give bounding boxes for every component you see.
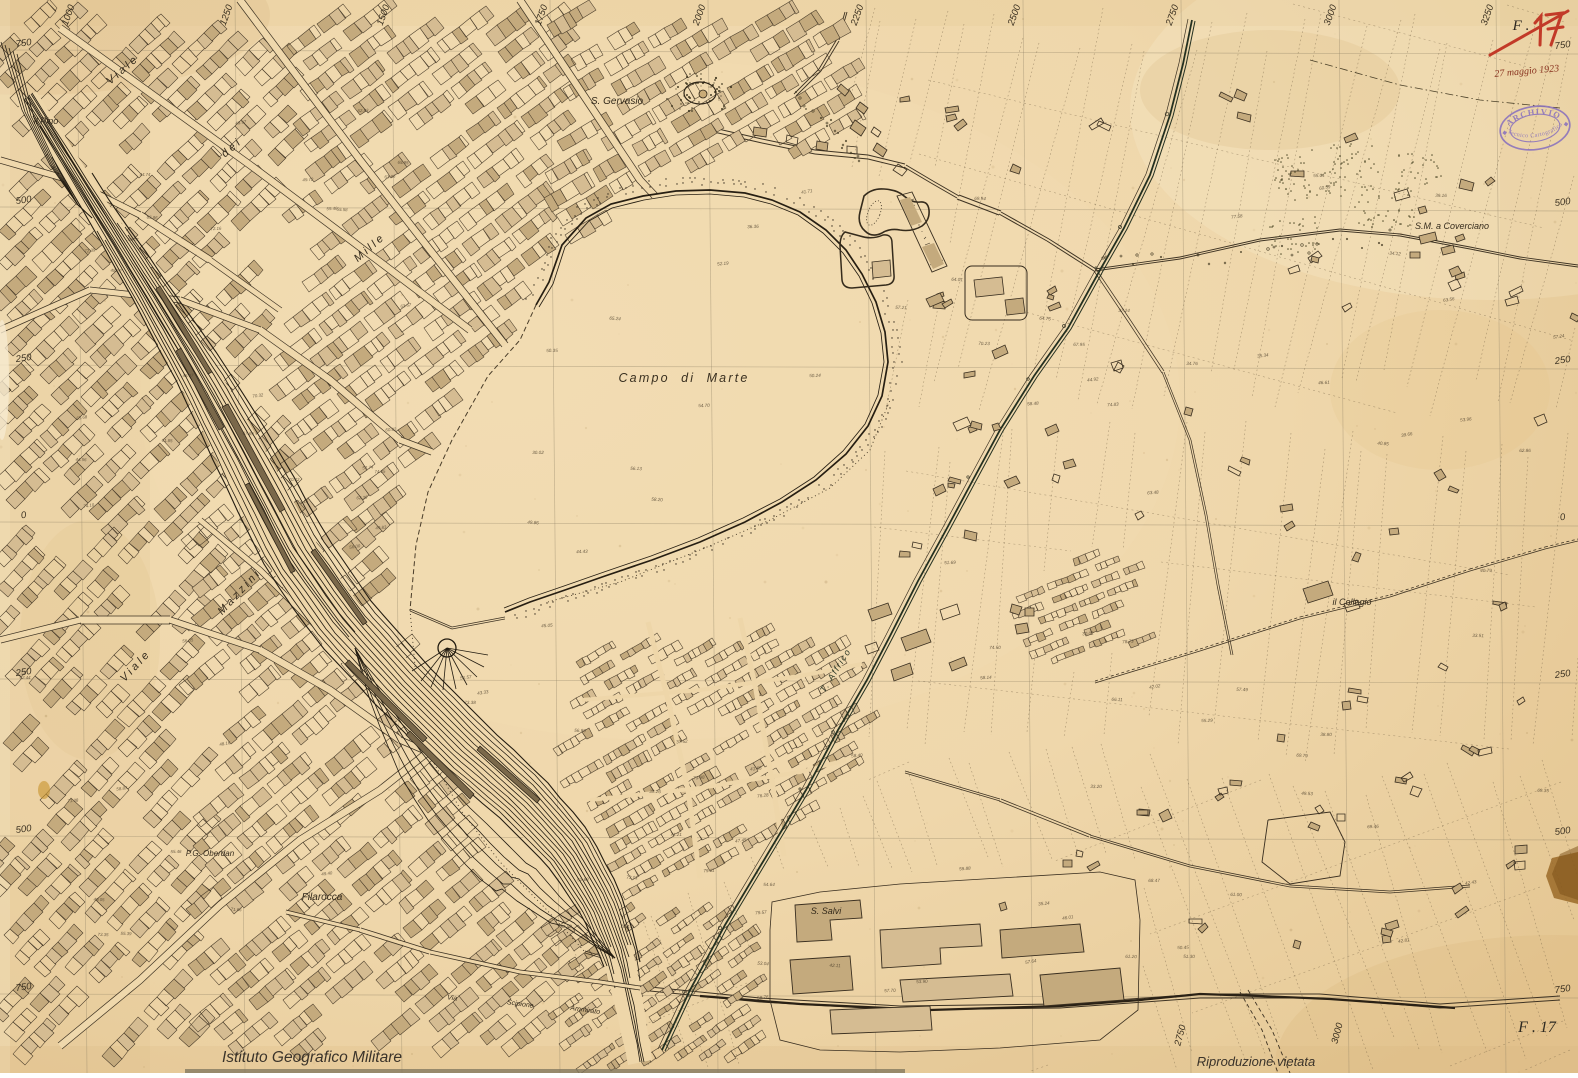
svg-text:73.38: 73.38	[464, 700, 476, 705]
svg-text:71.66: 71.66	[230, 907, 242, 913]
svg-text:56.99: 56.99	[574, 728, 586, 733]
svg-text:55.58: 55.58	[336, 207, 348, 213]
svg-text:S. Salvi: S. Salvi	[811, 906, 843, 916]
svg-text:Istituto Geografico Militare: Istituto Geografico Militare	[222, 1049, 402, 1066]
svg-text:67.95: 67.95	[1073, 342, 1085, 347]
svg-text:50.83: 50.83	[560, 924, 572, 929]
svg-text:58.20: 58.20	[651, 497, 663, 503]
svg-text:53.04: 53.04	[757, 961, 769, 967]
svg-text:69.35: 69.35	[1537, 788, 1549, 793]
svg-text:35.24: 35.24	[1038, 900, 1050, 906]
svg-text:57.49: 57.49	[1236, 687, 1248, 692]
svg-text:30.02: 30.02	[1082, 631, 1094, 637]
svg-text:44.74: 44.74	[139, 172, 151, 177]
svg-text:44.56: 44.56	[75, 457, 87, 462]
svg-text:49.53: 49.53	[1301, 791, 1313, 796]
svg-text:52.68: 52.68	[577, 877, 589, 883]
svg-text:Via: Via	[447, 994, 458, 1002]
svg-text:54.64: 54.64	[763, 882, 775, 887]
svg-text:71.98: 71.98	[693, 774, 705, 780]
svg-text:30.02: 30.02	[532, 450, 544, 455]
svg-text:Campo di Marte: Campo di Marte	[618, 371, 749, 385]
svg-text:Riproduzione vietata: Riproduzione vietata	[1197, 1054, 1316, 1069]
svg-text:48.22: 48.22	[110, 268, 122, 273]
svg-text:63.48: 63.48	[1147, 490, 1159, 496]
svg-text:78.73: 78.73	[1122, 639, 1134, 645]
svg-text:74.25: 74.25	[374, 469, 386, 475]
svg-text:500: 500	[1554, 196, 1572, 209]
svg-text:Filarocca: Filarocca	[302, 892, 343, 903]
svg-text:F .: F .	[1512, 18, 1530, 34]
svg-text:61.85: 61.85	[161, 438, 173, 444]
svg-text:44.43: 44.43	[576, 549, 588, 555]
svg-text:500: 500	[15, 194, 33, 207]
svg-text:500: 500	[15, 823, 33, 836]
svg-text:750: 750	[1554, 39, 1572, 52]
svg-text:51.30: 51.30	[1183, 954, 1195, 959]
svg-text:il Pino: il Pino	[34, 116, 59, 126]
svg-text:55.29: 55.29	[1201, 718, 1213, 723]
svg-text:58.48: 58.48	[1027, 401, 1039, 407]
svg-text:68.47: 68.47	[1148, 878, 1160, 883]
svg-text:65.95: 65.95	[397, 160, 409, 166]
svg-text:37.52: 37.52	[676, 739, 688, 745]
svg-text:72.16: 72.16	[210, 226, 222, 232]
svg-text:750: 750	[15, 37, 33, 50]
svg-text:45.97: 45.97	[182, 373, 194, 378]
svg-text:66.11: 66.11	[1111, 697, 1123, 702]
svg-text:62.86: 62.86	[1519, 448, 1531, 453]
svg-text:65.86: 65.86	[146, 215, 158, 221]
svg-text:61.00: 61.00	[1230, 892, 1242, 897]
svg-text:50.24: 50.24	[809, 373, 821, 378]
svg-text:71.21: 71.21	[670, 832, 682, 837]
svg-text:39.16: 39.16	[1435, 193, 1447, 198]
svg-text:il Collegio: il Collegio	[1332, 597, 1371, 607]
svg-text:S.M. a Coverciano: S.M. a Coverciano	[1415, 221, 1489, 231]
svg-text:37.24: 37.24	[1118, 308, 1130, 313]
svg-text:55.01: 55.01	[1313, 173, 1325, 178]
svg-text:52.19: 52.19	[717, 261, 729, 267]
svg-text:65.24: 65.24	[609, 316, 621, 322]
svg-text:40.79: 40.79	[1480, 568, 1492, 573]
svg-text:61.20: 61.20	[1125, 954, 1137, 959]
svg-text:33.51: 33.51	[1472, 633, 1484, 638]
svg-text:55.39: 55.39	[120, 931, 132, 936]
svg-text:45.05: 45.05	[541, 623, 553, 629]
svg-text:38.80: 38.80	[1320, 732, 1332, 737]
svg-text:57.21: 57.21	[895, 305, 907, 310]
svg-text:58.14: 58.14	[980, 675, 992, 681]
svg-text:70.02: 70.02	[288, 477, 300, 482]
svg-text:64.75: 64.75	[1039, 316, 1051, 322]
svg-text:79.11: 79.11	[703, 868, 715, 874]
svg-text:34.76: 34.76	[1186, 361, 1198, 366]
svg-text:73.35: 73.35	[97, 932, 109, 937]
svg-text:750: 750	[15, 981, 33, 994]
svg-text:67.69: 67.69	[242, 431, 254, 437]
svg-text:50.35: 50.35	[546, 348, 558, 353]
svg-text:34.12: 34.12	[1389, 251, 1401, 257]
svg-text:57.70: 57.70	[884, 988, 896, 993]
svg-text:74.50: 74.50	[989, 645, 1001, 650]
svg-text:49.86: 49.86	[527, 520, 539, 526]
svg-text:54.70: 54.70	[698, 403, 710, 408]
svg-text:74.83: 74.83	[1107, 402, 1119, 408]
svg-text:76.47: 76.47	[620, 924, 632, 930]
svg-text:51.69: 51.69	[944, 560, 956, 565]
svg-text:42.11: 42.11	[829, 963, 841, 969]
svg-text:S. Gervasio: S. Gervasio	[591, 96, 644, 107]
svg-text:62.83: 62.83	[357, 108, 369, 114]
svg-text:59.88: 59.88	[959, 866, 971, 872]
svg-text:750: 750	[1554, 983, 1572, 996]
svg-text:49.72: 49.72	[302, 177, 314, 183]
svg-text:62.36: 62.36	[356, 495, 368, 501]
svg-text:69.94: 69.94	[974, 196, 986, 201]
svg-text:50.45: 50.45	[1177, 945, 1189, 950]
svg-text:56.13: 56.13	[630, 466, 642, 471]
svg-text:64.01: 64.01	[951, 277, 963, 283]
svg-text:39.26: 39.26	[649, 789, 661, 794]
svg-text:59.46: 59.46	[326, 206, 338, 212]
svg-text:56.17: 56.17	[127, 237, 139, 242]
svg-text:40.85: 40.85	[1377, 441, 1389, 447]
svg-text:46.61: 46.61	[1318, 380, 1330, 385]
svg-text:70.23: 70.23	[978, 341, 990, 346]
svg-text:55.46: 55.46	[170, 849, 182, 854]
svg-text:P.G. Oberdan: P.G. Oberdan	[186, 849, 235, 858]
svg-text:73.01: 73.01	[626, 875, 638, 881]
svg-text:49.83: 49.83	[375, 524, 387, 530]
svg-text:33.20: 33.20	[1090, 784, 1102, 789]
svg-text:500: 500	[1554, 825, 1572, 838]
svg-text:79.57: 79.57	[755, 910, 767, 916]
svg-text:61.86: 61.86	[384, 174, 396, 180]
svg-text:F . 17: F . 17	[1517, 1019, 1557, 1036]
svg-text:69.46: 69.46	[1367, 824, 1379, 829]
svg-text:53.90: 53.90	[916, 979, 928, 985]
svg-text:69.79: 69.79	[1296, 753, 1308, 759]
svg-text:36.36: 36.36	[747, 224, 759, 229]
svg-text:49.05: 49.05	[93, 897, 105, 902]
